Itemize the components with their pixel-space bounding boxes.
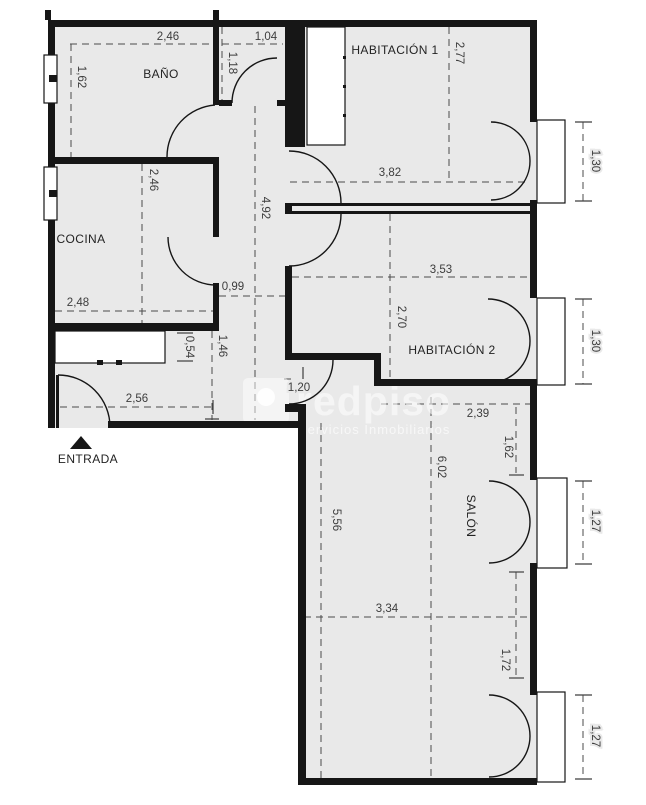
wall-banio-right (213, 20, 219, 105)
room-label-salon: SALÓN (464, 495, 479, 538)
watermark: redpiso Servicios Inmobiliarios (243, 378, 451, 437)
dim-salon-ancho-sup: 2,39 (467, 408, 489, 420)
closet-recibidor (55, 331, 165, 363)
dim-pasillo-largo: 4,92 (259, 197, 271, 219)
balconies-layer (537, 120, 567, 782)
dim-habitacion2-fondo: 2,70 (395, 306, 407, 328)
dim-pasillo-ancho: 0,99 (222, 281, 244, 293)
balcony-habitacion2 (537, 298, 565, 385)
dim-balcon-habitacion2: 1,30 (589, 330, 601, 352)
entrance-marker (70, 436, 92, 449)
wall-banio-cocina (48, 157, 219, 164)
room-label-banio: BAÑO (143, 67, 179, 81)
watermark-logo-circle-icon (257, 388, 275, 406)
dim-recibidor-ancho: 2,56 (126, 393, 148, 405)
dim-balcon-salon-2: 1,27 (589, 725, 601, 747)
dim-cocina-fondo: 2,46 (147, 169, 159, 191)
wall-bottom (298, 778, 537, 785)
wardrobe-habitacion1 (307, 27, 345, 145)
room-label-habitacion2: HABITACIÓN 2 (408, 342, 495, 357)
wall-salon-left (298, 404, 306, 785)
room-label-cocina: COCINA (56, 232, 105, 246)
dim-banio-ancho: 2,46 (157, 31, 179, 43)
dim-salon-largo: 6,02 (435, 456, 447, 478)
dim-recibidor-fondo: 1,46 (216, 335, 228, 357)
dim-salon-tramo-balcones: 1,72 (499, 649, 511, 671)
wall-block-habitacion1 (285, 20, 305, 147)
dim-pasillo-banio: 1,18 (226, 52, 238, 74)
dim-habitacion2-ancho: 3,53 (430, 264, 452, 276)
dim-armario-fondo: 0,54 (183, 336, 195, 359)
wall-habitacion2-bottom (374, 379, 537, 386)
dim-salon-ancho-inf: 3,34 (376, 603, 399, 615)
wall-divider-h1-h2 (285, 203, 533, 206)
dim-banio-fondo: 1,62 (75, 66, 87, 88)
balcony-habitacion1 (537, 120, 565, 203)
watermark-tagline: Servicios Inmobiliarios (298, 422, 450, 437)
dim-balcon-salon-1: 1,27 (589, 510, 601, 532)
wall-recibidor-bottom (108, 421, 298, 428)
balcony-salon-1 (537, 478, 567, 568)
dim-habitacion1-fondo: 2,77 (453, 42, 465, 64)
dim-salon-largo-izq: 5,56 (330, 509, 342, 531)
floor-plan: redpiso Servicios Inmobiliarios (0, 0, 646, 805)
wall-cocina-right-top (213, 157, 219, 237)
balcony-salon-2 (537, 692, 565, 782)
dim-puerta-salon: 1,20 (288, 382, 310, 394)
dim-salon-tramo-sup: 1,62 (502, 436, 514, 458)
room-label-entrada: ENTRADA (58, 452, 118, 466)
dim-cocina-ancho: 2,48 (67, 297, 89, 309)
dim-habitacion1-ancho: 3,82 (379, 167, 401, 179)
room-label-habitacion1: HABITACIÓN 1 (351, 42, 438, 57)
wall-cocina-bottom (48, 323, 219, 331)
wall-pasillo-right (285, 266, 292, 360)
door-entrada-leaf (56, 375, 59, 428)
wall-right (530, 20, 537, 122)
entrance-arrow-icon (70, 436, 92, 449)
dim-pasillo-ancho-sup: 1,04 (255, 31, 278, 43)
dim-balcon-habitacion1: 1,30 (589, 150, 601, 172)
